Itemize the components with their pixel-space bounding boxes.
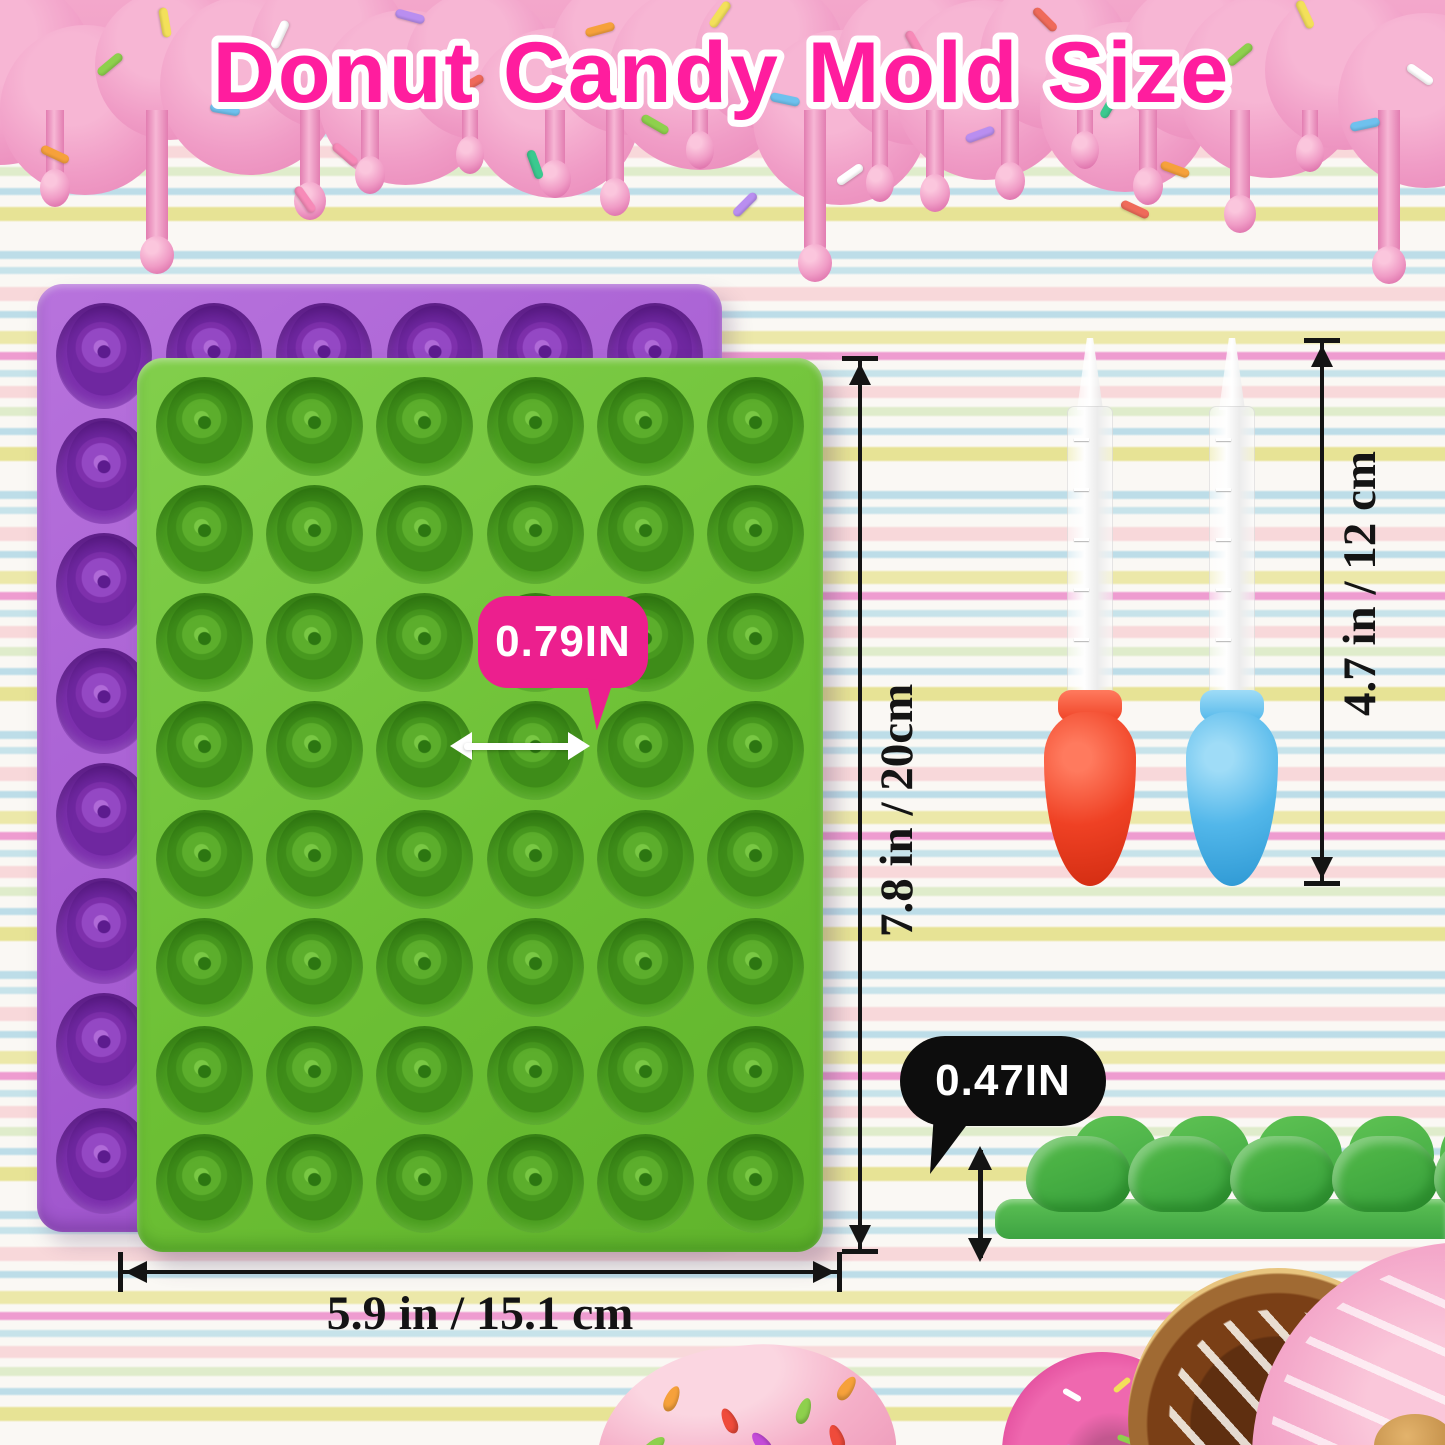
donut-cavity [707, 810, 804, 909]
donut-cavity [376, 918, 473, 1017]
cavity-diameter-label: 0.79IN [495, 617, 631, 667]
dimension-cap [1304, 881, 1340, 886]
arrow-left-icon [125, 1261, 147, 1283]
dimension-cap [837, 1252, 842, 1292]
donut-cavity [707, 593, 804, 692]
dropper-scale-mark [1074, 538, 1089, 541]
dropper-scale-mark [1216, 538, 1231, 541]
dimension-line [858, 359, 862, 1251]
dropper-barrel [1067, 406, 1113, 698]
donut-cavity [266, 593, 363, 692]
donut-cavity [487, 485, 584, 584]
donut-cavity [707, 918, 804, 1017]
donut-cavity [156, 485, 253, 584]
dimension-line [1320, 341, 1324, 883]
arrow-up-icon [849, 363, 871, 385]
donut-cavity [156, 918, 253, 1017]
donut-cavity [156, 810, 253, 909]
donut-mold-size-infographic: Donut Candy Mold Size Donut Candy Mold S… [0, 0, 1445, 1445]
dropper-scale-mark [1074, 638, 1089, 641]
donut-cavity [707, 1134, 804, 1233]
donut-cavity [376, 485, 473, 584]
donut-cavity [266, 810, 363, 909]
arrow-down-icon [849, 1225, 871, 1247]
dropper-bulb [1186, 712, 1278, 886]
dropper-scale-mark [1216, 488, 1231, 491]
dropper-tip [1077, 338, 1103, 410]
donut-cavity [707, 701, 804, 800]
dropper-bulb [1044, 712, 1136, 886]
donut-cavity [707, 485, 804, 584]
mold-thickness-label: 0.47IN [935, 1056, 1071, 1106]
donut-cavity [156, 593, 253, 692]
donut-cavity [597, 1134, 694, 1233]
donut-cavity [266, 1134, 363, 1233]
donut-cavity [266, 377, 363, 476]
arrow-up-icon [1311, 345, 1333, 367]
green-mold-cavity-grid [137, 358, 823, 1252]
arrow-line [464, 743, 576, 750]
donut-cavity [156, 1026, 253, 1125]
dropper-length-label: 4.7 in / 12 cm [1330, 368, 1390, 798]
cavity-diameter-arrow [450, 728, 590, 764]
donut-cavity [487, 1026, 584, 1125]
donut-cavity [156, 701, 253, 800]
dimension-cap [842, 1249, 878, 1254]
donut-cavity [487, 810, 584, 909]
donut-cavity [156, 1134, 253, 1233]
mold-height-label: 7.8 in / 20cm [868, 575, 926, 1045]
arrow-right-icon [568, 732, 590, 760]
dropper-scale-mark [1074, 588, 1089, 591]
donut-cavity [376, 1134, 473, 1233]
donut-cavity [487, 1134, 584, 1233]
donut-cavity [266, 701, 363, 800]
donut-cavity [376, 377, 473, 476]
dropper-scale-mark [1216, 438, 1231, 441]
arrow-right-icon [813, 1261, 835, 1283]
arrow-down-icon [968, 1238, 992, 1262]
donut-cavity [597, 485, 694, 584]
arrow-down-icon [1311, 857, 1333, 879]
donut-cavity [376, 1026, 473, 1125]
donut-cavity [376, 810, 473, 909]
donut-cavity [266, 485, 363, 584]
blue-dropper [1182, 338, 1282, 886]
donut-cavity [707, 377, 804, 476]
green-donut-mold [137, 358, 823, 1252]
donut-cavity [707, 1026, 804, 1125]
dropper-scale-mark [1216, 638, 1231, 641]
dropper-scale-mark [1216, 588, 1231, 591]
donut-cavity [487, 377, 584, 476]
donut-cavity [597, 918, 694, 1017]
mold-thickness-arrow [958, 1146, 1002, 1262]
dropper-scale-mark [1074, 438, 1089, 441]
donut-cavity [156, 377, 253, 476]
dropper-barrel [1209, 406, 1255, 698]
donut-cavity [597, 701, 694, 800]
dropper-tip [1219, 338, 1245, 410]
donut-cavity [597, 377, 694, 476]
donut-cavity [266, 1026, 363, 1125]
cavity-diameter-callout: 0.79IN [478, 596, 648, 688]
red-dropper [1040, 338, 1140, 886]
donut-cavity [266, 918, 363, 1017]
donut-cavity [597, 810, 694, 909]
dropper-scale-mark [1074, 488, 1089, 491]
donut-cavity [487, 918, 584, 1017]
donut-cavity [597, 1026, 694, 1125]
mold-width-label: 5.9 in / 15.1 cm [190, 1286, 770, 1341]
dimension-line [121, 1270, 839, 1274]
donut-cavity [376, 593, 473, 692]
mold-thickness-callout: 0.47IN [900, 1036, 1106, 1126]
